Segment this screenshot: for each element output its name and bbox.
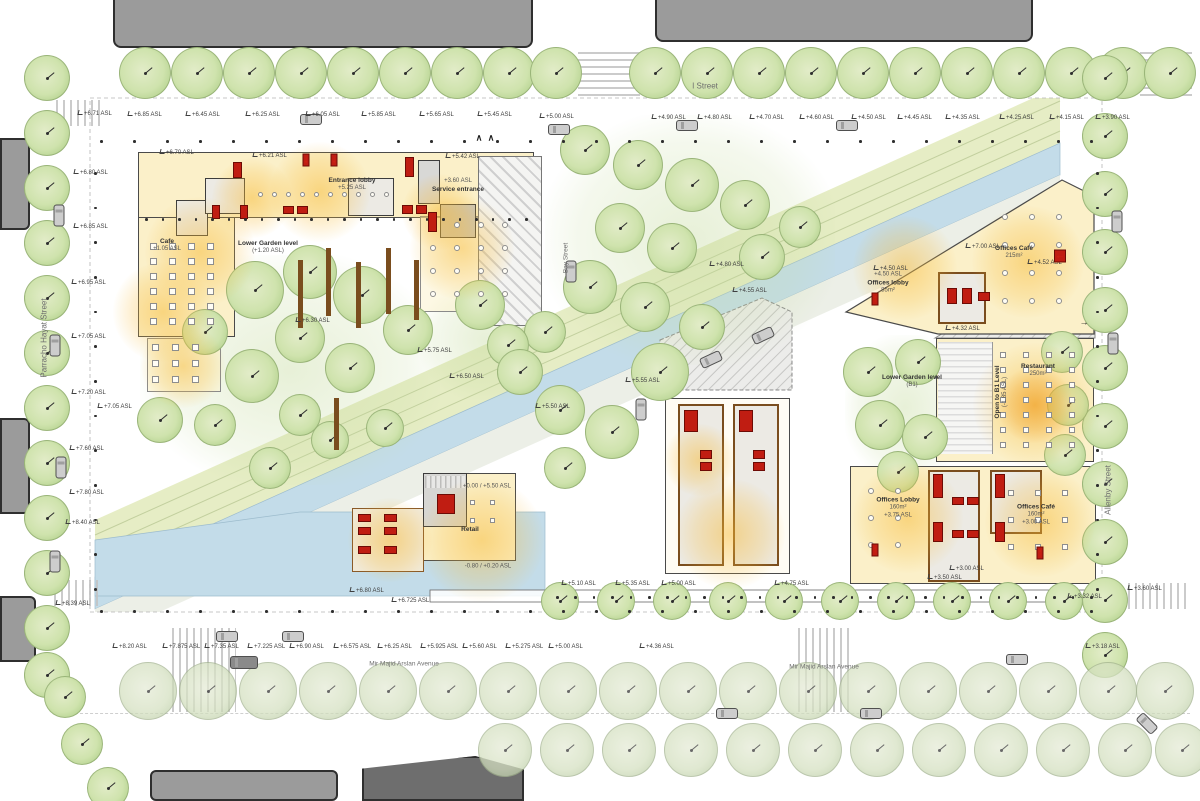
table-icon [1029,270,1035,276]
room-name: Cafe [153,238,181,246]
tree-icon [24,495,70,541]
bollard-dot [475,218,478,221]
bollard-dot [1096,553,1099,556]
bollard-dot [832,596,835,599]
tree-icon [299,662,357,720]
room-label-cafe: Cafe +1.05 ASL [153,238,181,254]
elevation-label: +4.55 ASL [733,287,767,294]
table-icon [300,192,305,197]
elevator-icon [700,462,712,471]
bollard-dot [925,140,928,143]
table-icon [470,518,475,523]
tree-icon [24,550,70,596]
tree-icon [194,404,236,446]
elevation-label: +6.80 ASL [350,587,384,594]
tree-icon [1082,519,1128,565]
elevation-label: +6.45 ASL [186,111,220,118]
tree-icon [595,203,645,253]
context-building [655,0,1033,42]
up-arrow-icon: ↑ [872,293,879,306]
tree-icon [455,280,505,330]
bollard-dot [94,311,97,314]
tree-icon [249,447,291,489]
elevation-label: +6.25 ASL [246,111,280,118]
elevator-icon [753,462,765,471]
bollard-dot [869,596,872,599]
elevator-icon [967,497,979,505]
table-icon [207,303,214,310]
tree-icon [779,206,821,248]
elevation-label: +5.45 ASL [478,111,512,118]
table-icon [1029,214,1035,220]
table-icon [286,192,291,197]
table-icon [1002,298,1008,304]
table-icon [1056,214,1062,220]
tree-icon [544,447,586,489]
elevation-label: +5.10 ASL [562,580,596,587]
table-icon [192,344,199,351]
bollard-dot [442,218,445,221]
bollard-dot [760,140,763,143]
table-icon [478,291,484,297]
elevator-icon [947,288,957,304]
tree-icon [850,723,904,777]
table-icon [502,245,508,251]
table-icon [868,515,874,521]
tree-icon [1144,47,1196,99]
bollard-dot [1096,276,1099,279]
tree-icon [1136,662,1194,720]
table-icon [188,288,195,295]
table-icon [152,344,159,351]
elevation-label: +4.45 ASL [898,114,932,121]
bollard-dot [740,596,743,599]
tree-icon [779,662,837,720]
bollard-dot [991,610,994,613]
table-icon [1035,490,1041,496]
room-label-restaurant: Restaurant 250m² [1021,363,1055,379]
elevator-icon [437,494,455,514]
room-area: 250m² [1021,371,1055,379]
tree-icon [1045,582,1083,620]
table-icon [502,291,508,297]
bollard-dot [925,610,928,613]
elevator-icon [405,157,414,177]
elevator-icon [212,205,220,219]
chevron-arrow-icon: ∧ [488,133,495,144]
service-core [440,204,476,238]
bollard-dot [1096,380,1099,383]
elevator-icon [995,474,1005,498]
elevation-label: +6.50 ASL [450,373,484,380]
table-icon [172,376,179,383]
tree-icon [709,582,747,620]
elevation-label: +5.275 ASL [506,643,543,650]
elevation-label: +4.75 ASL [775,580,809,587]
bollard-dot [826,140,829,143]
car-icon [836,120,858,131]
room-label-open-b1: Open to B1 Level (-1.85 ASL) [994,365,1010,418]
table-icon [478,222,484,228]
elevation-label: +5.55 ASL [626,377,660,384]
car-icon [56,457,67,479]
elevator-icon [739,410,753,432]
bollard-dot [199,140,202,143]
tree-icon [821,582,859,620]
bollard-dot [1096,207,1099,210]
bollard-dot [525,218,528,221]
table-icon [1046,382,1052,388]
bollard-dot [430,140,433,143]
table-icon [1008,544,1014,550]
tree-icon [726,723,780,777]
elevation-label: +5.65 ASL [420,111,454,118]
elevation-label: +6.725 ASL [392,597,429,604]
bollard-dot [859,140,862,143]
elevator-icon [753,450,765,459]
tree-icon [1082,577,1128,623]
table-icon [1023,412,1029,418]
elevation-label: +3.60 ASL [1128,585,1162,592]
room-elevation: +1.05 ASL [153,246,181,254]
elevation-label: +5.50 ASL [536,403,570,410]
table-icon [384,192,389,197]
bollard-dot [574,596,577,599]
tree-icon [182,309,228,355]
bollard-dot [1024,140,1027,143]
bollard-dot [628,140,631,143]
bollard-dot [630,596,633,599]
tree-icon [899,662,957,720]
elevator-icon [933,522,943,542]
elevator-icon [402,205,413,214]
table-icon [1056,270,1062,276]
room-name: Lower Garden level [238,240,298,248]
bollard-dot [178,218,181,221]
tree-icon [912,723,966,777]
wood-wall [326,248,331,316]
table-icon [490,518,495,523]
room-elevation: -0.80 / +0.20 ASL [465,563,512,571]
tree-icon [333,266,391,324]
elevation-label: +6.575 ASL [334,643,371,650]
bollard-dot [648,596,651,599]
room-name: Offices Café [995,245,1033,253]
room-elevation: +0.00 / +5.50 ASL [463,483,511,491]
table-icon [207,258,214,265]
table-icon [169,303,176,310]
elevation-label: +3.18 ASL [1086,643,1120,650]
bollard-dot [1057,610,1060,613]
tree-icon [359,662,417,720]
elevation-label: +4.70 ASL [750,114,784,121]
table-icon [454,222,460,228]
elevator-icon [952,530,964,538]
bollard-dot [529,610,532,613]
bollard-dot [298,610,301,613]
bollard-dot [793,610,796,613]
table-icon [895,488,901,494]
down-arrow-icon: ↓ [303,154,310,167]
table-icon [169,273,176,280]
room-name: Offices Café [1017,503,1055,511]
tree-icon [739,234,785,280]
tree-icon [631,343,689,401]
room-name: Retail [461,526,479,534]
room-label-offices-cafe-north: Offices Café 215m² [995,245,1033,261]
car-icon [216,631,238,642]
elevator-icon [283,206,294,214]
table-icon [207,288,214,295]
bollard-dot [397,610,400,613]
bollard-dot [463,140,466,143]
bollard-dot [94,345,97,348]
bollard-dot [892,140,895,143]
tree-icon [419,662,477,720]
bollard-dot [397,140,400,143]
table-icon [502,268,508,274]
bollard-dot [94,207,97,210]
bollard-dot [331,140,334,143]
tree-icon [24,110,70,156]
tree-icon [479,662,537,720]
table-icon [150,303,157,310]
tree-icon [733,47,785,99]
table-icon [1046,442,1052,448]
table-icon [1062,544,1068,550]
elevator-icon [962,288,972,304]
bollard-dot [360,218,363,221]
bollard-dot [814,596,817,599]
room-elevation: +5.25 ASL [329,185,376,193]
tree-icon [629,47,681,99]
tree-icon [597,582,635,620]
bollard-dot [409,218,412,221]
elevator-icon [384,546,397,554]
elevation-label: +4.15 ASL [1050,114,1084,121]
bollard-dot [265,610,268,613]
elevation-label: +7.80 ASL [70,489,104,496]
elevation-label: +6.21 ASL [253,152,287,159]
elevator-icon [358,527,371,535]
bollard-dot [199,610,202,613]
bollard-dot [727,140,730,143]
elevator-icon [297,206,308,214]
tree-icon [1036,723,1090,777]
elevator-icon [700,450,712,459]
car-icon [50,551,61,573]
bollard-dot [892,610,895,613]
down-arrow-icon: ↓ [331,154,338,167]
elevation-label: +5.00 ASL [549,643,583,650]
table-icon [1023,427,1029,433]
retail-elevation-upper: +0.00 / +5.50 ASL [463,483,511,491]
elevation-label: +4.60 ASL [800,114,834,121]
tree-icon [24,385,70,431]
table-icon [207,243,214,250]
table-icon [169,258,176,265]
table-icon [150,258,157,265]
bollard-dot [991,140,994,143]
tree-icon [431,47,483,99]
bollard-dot [496,140,499,143]
table-icon [188,318,195,325]
room-name: Offices Lobby [876,496,919,504]
tree-icon [540,723,594,777]
bollard-dot [94,380,97,383]
room-elevation: +3.00 ASL [1017,519,1055,527]
bollard-dot [727,610,730,613]
elevation-label: +8.20 ASL [113,643,147,650]
elevation-label: +6.90 ASL [290,643,324,650]
table-icon [207,273,214,280]
tree-icon [530,47,582,99]
tree-icon [1047,384,1089,426]
table-icon [1023,397,1029,403]
elevation-label: +7.35 ASL [205,643,239,650]
car-icon [1006,654,1028,665]
bollard-dot [94,588,97,591]
wood-wall [386,248,391,314]
bollard-dot [958,610,961,613]
wood-wall [356,262,361,328]
bollard-dot [426,218,429,221]
elevation-label: +7.60 ASL [70,445,104,452]
car-icon [716,708,738,719]
bollard-dot [211,218,214,221]
tree-icon [989,582,1027,620]
tree-icon [665,158,719,212]
table-icon [490,500,495,505]
table-icon [454,268,460,274]
tree-icon [137,397,183,443]
elevation-label: +5.60 ASL [463,643,497,650]
bollard-dot [961,596,964,599]
room-label-lower-garden: Lower Garden level (+1.20 ASL) [238,240,298,256]
bollard-dot [133,610,136,613]
wood-wall [414,260,419,320]
room-elevation: (-1.85 ASL) [1002,365,1010,418]
bollard-dot [661,140,664,143]
table-icon [1008,517,1014,523]
bollard-dot [1096,172,1099,175]
tree-icon [1082,345,1128,391]
elevation-label: +3.50 ASL [928,574,962,581]
elevation-label: +4.36 ASL [640,643,674,650]
bollard-dot [694,140,697,143]
tree-icon [933,582,971,620]
elevation-label: +5.00 ASL [662,580,696,587]
bollard-dot [759,596,762,599]
elevation-label: +5.85 ASL [362,111,396,118]
table-icon [1069,397,1075,403]
tree-icon [1155,723,1200,777]
tree-icon [478,723,532,777]
table-icon [1069,352,1075,358]
car-icon [282,631,304,642]
tree-icon [620,282,670,332]
tree-icon [889,47,941,99]
bollard-dot [166,140,169,143]
table-icon [1000,427,1006,433]
tree-icon [1019,662,1077,720]
bollard-dot [1096,415,1099,418]
bollard-dot [496,610,499,613]
bollard-dot [1016,596,1019,599]
elevation-label: +6.70 ASL [160,149,194,156]
room-label-offices-lobby-south: Offices Lobby 160m² +3.75 ASL [876,496,919,519]
chevron-arrow-icon: ∧ [476,133,483,144]
tree-icon [483,47,535,99]
stair-core [205,178,245,214]
tree-icon [171,47,223,99]
tree-icon [602,723,656,777]
tree-icon [647,223,697,273]
room-area: 160m² [876,505,919,513]
elevation-label: +3.90 ASL [1096,114,1130,121]
table-icon [172,360,179,367]
table-icon [470,500,475,505]
bollard-dot [376,218,379,221]
elevator-icon [967,530,979,538]
table-icon [1002,214,1008,220]
tree-icon [119,47,171,99]
tree-icon [325,343,375,393]
elevation-label: +6.25 ASL [378,643,412,650]
bollard-dot [793,140,796,143]
table-icon [895,542,901,548]
room-elevation: +3.75 ASL [876,512,919,520]
room-area: 160m² [1017,512,1055,520]
table-icon [1046,352,1052,358]
elevator-icon [978,292,990,301]
bollard-dot [556,596,559,599]
bollard-dot [343,218,346,221]
table-icon [478,268,484,274]
room-elevation: +3.60 ASL [432,178,484,186]
bollard-dot [851,596,854,599]
bollard-dot [595,610,598,613]
up-arrow-icon: ↑ [1037,547,1044,560]
bollard-dot [244,218,247,221]
tree-icon [679,304,725,350]
table-icon [868,488,874,494]
elevator-icon [995,522,1005,542]
bollard-dot [859,610,862,613]
bollard-dot [364,140,367,143]
tree-icon [941,47,993,99]
bollard-dot [703,596,706,599]
bollard-dot [795,596,798,599]
tree-icon [535,385,585,435]
room-name: Service entrance [432,186,484,194]
tree-icon [24,55,70,101]
bollard-dot [1096,449,1099,452]
room-name: Open to B1 Level [994,365,1002,418]
table-icon [1000,352,1006,358]
car-icon [636,399,647,421]
street-label-bottom: Mir Majid Arslan Avenue [789,664,859,671]
bollard-dot [277,218,280,221]
bollard-dot [887,596,890,599]
elevation-label: +6.85 ASL [128,111,162,118]
elevator-icon [358,546,371,554]
table-icon [1069,382,1075,388]
bollard-dot [463,610,466,613]
bollard-dot [94,553,97,556]
table-icon [169,288,176,295]
tree-icon [974,723,1028,777]
